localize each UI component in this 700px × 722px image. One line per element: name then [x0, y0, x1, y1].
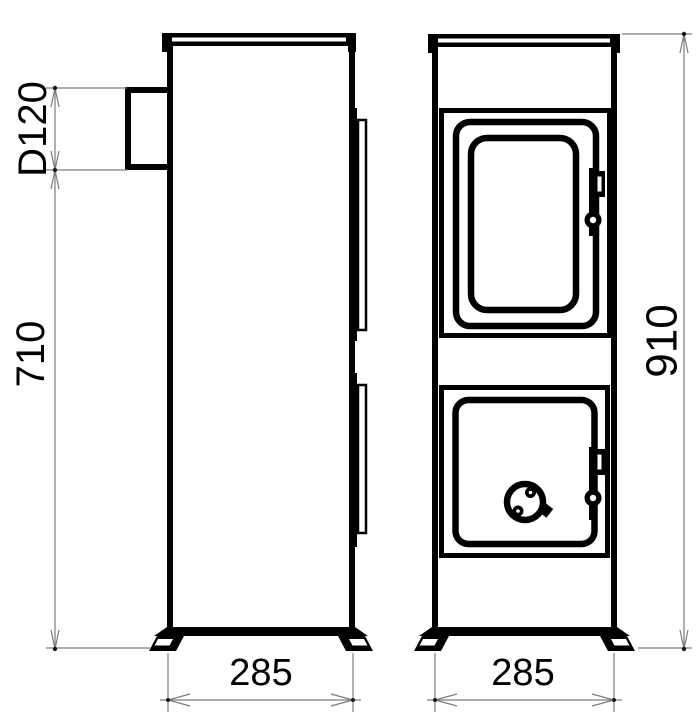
upper-door-latch: [585, 168, 606, 236]
lower-door: [442, 388, 608, 556]
front-view: [414, 34, 635, 651]
side-upper-door-profile: [351, 108, 366, 341]
dim-label-height-to-flue: 710: [9, 321, 53, 388]
dim-label-flue-diameter: D120: [11, 81, 55, 177]
flue-pipe: [128, 90, 170, 167]
dimension-left-vertical: [46, 86, 150, 651]
upper-door: [442, 111, 610, 336]
air-control-knob: [507, 484, 553, 520]
front-body-left-wall: [432, 47, 438, 628]
lower-door-frame: [442, 388, 608, 556]
side-view: [128, 33, 373, 651]
stove-technical-drawing: D120 710 910 285 285: [0, 0, 700, 722]
drawing-canvas: D120 710 910 285 285: [0, 0, 700, 722]
side-top-plate: [162, 33, 356, 52]
front-base: [414, 627, 635, 651]
dim-label-side-depth: 285: [229, 652, 292, 694]
dim-label-overall-height: 910: [638, 304, 687, 377]
side-base: [149, 627, 373, 651]
front-top-plate: [428, 34, 620, 53]
dim-label-front-width: 285: [491, 652, 554, 694]
lower-door-latch: [585, 447, 606, 520]
side-lower-door-profile: [351, 373, 366, 547]
upper-door-glass: [471, 138, 576, 310]
upper-door-frame: [442, 111, 610, 336]
